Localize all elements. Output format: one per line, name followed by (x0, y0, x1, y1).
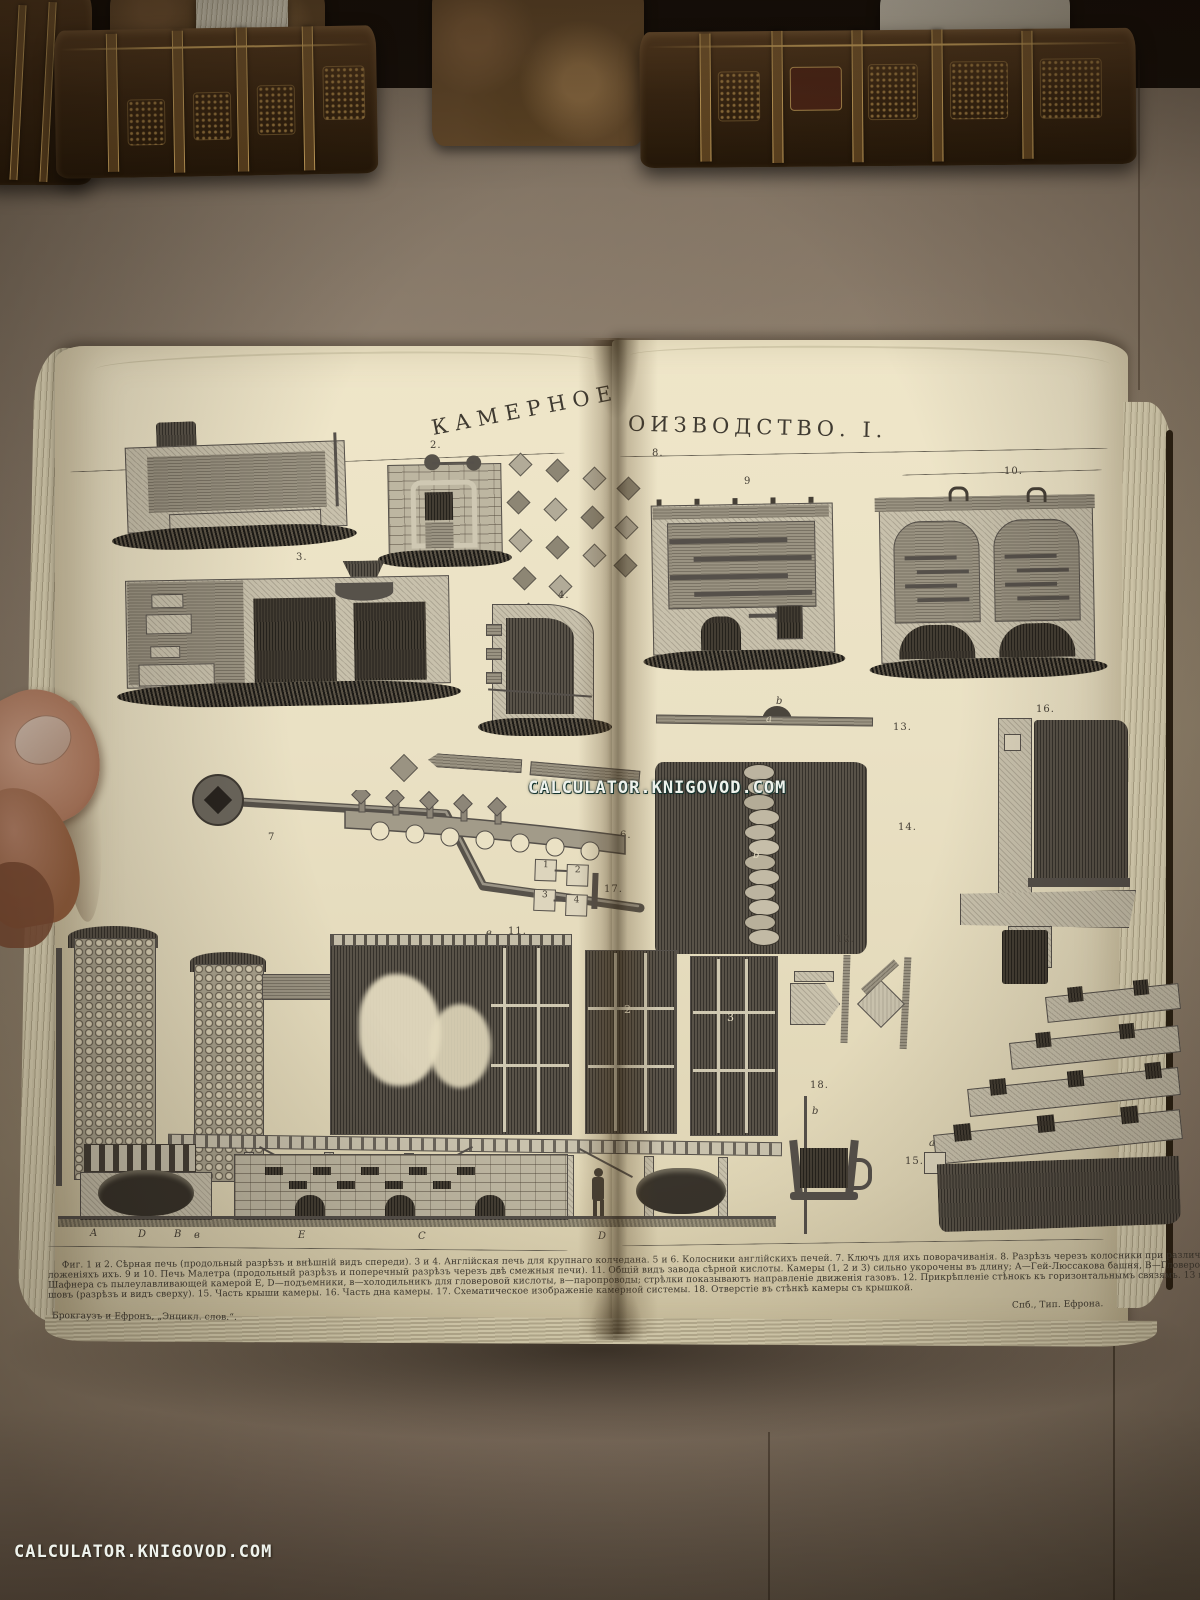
door-lower-panel (425, 522, 453, 548)
figure-12-wall-fixings (780, 955, 920, 1065)
spine-raised-band (771, 31, 783, 163)
furnace-interior (147, 451, 327, 513)
beam-boss (1120, 1106, 1139, 1125)
figure-10-maletra-transverse (874, 476, 1099, 682)
photo-scene: КАМЕРНОЕ ОИЗВОДСТВО. I. 2. 8. (0, 0, 1200, 1600)
timber-block (1002, 930, 1048, 984)
vent-opening (409, 1167, 427, 1175)
figure-3-english-furnace (121, 559, 454, 713)
spine-raised-band (172, 31, 185, 173)
baseline-letter-E: E (298, 1230, 305, 1241)
lead-curtain (937, 1156, 1181, 1232)
grate-stack (84, 1144, 196, 1172)
beam-boss (989, 1078, 1007, 1096)
fixing-plate-arrow (790, 983, 840, 1025)
chamber-rail-line (491, 1004, 569, 1007)
chamber-opening (353, 602, 426, 681)
gutter-top-notch (592, 340, 640, 420)
book-spine-right (639, 28, 1136, 168)
lid-trough-interior (800, 1148, 848, 1188)
beam-boss (1067, 986, 1083, 1002)
watermark-bottom-left: CALCULATOR.KNIGOVOD.COM (14, 1542, 272, 1562)
beam-boss (1119, 1023, 1135, 1039)
figure-14-letter-b: b (753, 850, 759, 861)
spine-gold-ornament (1040, 58, 1103, 119)
tower-pipe (56, 948, 62, 1186)
grate-bar (428, 753, 523, 774)
scheme-cell-number: 1 (543, 860, 549, 870)
vent-opening (289, 1181, 307, 1189)
spine-gold-ornament (868, 64, 918, 120)
baseline-letter-C: C (418, 1231, 426, 1242)
spine-gold-ornament (127, 99, 166, 146)
grate-diamond (543, 497, 567, 521)
beam-boss (1037, 1114, 1056, 1133)
furnace-door-arch (385, 1195, 415, 1217)
welded-disc (748, 929, 780, 946)
shelf-bar (1005, 582, 1057, 587)
sheet-foot (1028, 878, 1130, 887)
grate-diamond (508, 452, 532, 476)
spine-gold-ornament (718, 71, 760, 121)
fixing-clip (1004, 734, 1021, 751)
gutter-bottom-notch (588, 1280, 644, 1340)
figure-13-label: 13. (893, 722, 912, 733)
spine-raised-band (699, 34, 711, 162)
chamber-rail-line (693, 1011, 775, 1014)
baseline-letter-v: в (194, 1230, 200, 1241)
scheme-cell-1: 1 (534, 859, 557, 882)
figure-15-chamber-roof (920, 920, 1180, 1230)
chamber-mullion (745, 959, 748, 1133)
shelf-bay (993, 518, 1081, 621)
chamber-mullion (503, 948, 506, 1132)
beam-boss (1133, 979, 1149, 995)
vent-opening (457, 1167, 475, 1175)
spine-raised-band (931, 30, 943, 162)
bar-end-diamond (390, 754, 418, 782)
scheme-connector (554, 900, 566, 902)
acid-egg-tank (98, 1170, 194, 1216)
fixing-bar (840, 955, 850, 1043)
imprint-left: Брокгаузъ и Ефронъ, „Энцикл. слов.“. (52, 1311, 237, 1323)
chamber-opening (253, 597, 336, 682)
figure-18-label: 18. (810, 1080, 829, 1091)
paper-fold-top-right (1138, 60, 1140, 390)
shelf-bar (1017, 568, 1069, 573)
roof-beam-2 (967, 1067, 1181, 1117)
figure-12-label: 12. (836, 934, 855, 945)
chamber-rail-line (491, 1064, 569, 1067)
baseline-letter-A: A (90, 1228, 97, 1239)
baseline-letter-D: D (138, 1229, 146, 1240)
scheme-cell-3: 3 (533, 889, 556, 912)
beam-boss (1067, 1070, 1085, 1088)
chamber-mullion (717, 959, 720, 1133)
ground-hatch-strip (58, 1219, 776, 1227)
furnace-bank (234, 1154, 568, 1220)
roof-beam-4 (1045, 983, 1181, 1023)
shelf-bar (1005, 554, 1057, 559)
chamber-mullion (537, 948, 540, 1132)
grate-diamond (512, 566, 536, 590)
figure-10-label: 10. (1004, 466, 1023, 477)
charging-door (151, 594, 183, 609)
spine-raised-band (302, 26, 316, 170)
spine-gilt-line (648, 42, 1128, 48)
scheme-cell-number: 3 (542, 890, 548, 900)
lead-wall-sheet (1034, 720, 1128, 884)
beam-boss (1144, 1062, 1162, 1080)
gutter-shadow (578, 338, 658, 1334)
shelf-bar (905, 584, 957, 589)
beam-boss (1035, 1032, 1051, 1048)
figure-2-furnace-front (382, 449, 509, 569)
vapour-cloud (429, 1004, 491, 1088)
fixing-strip (794, 971, 834, 982)
watermark-center: CALCULATOR.KNIGOVOD.COM (528, 778, 786, 798)
vent-opening (337, 1181, 355, 1189)
chamber-rail-line (693, 1069, 775, 1072)
grate-diamond (545, 458, 569, 482)
grate-diamond (508, 528, 532, 552)
book-spine-left (54, 25, 379, 179)
spine-raised-band (236, 27, 250, 171)
damaged-book-cover-right (432, 0, 644, 146)
shelf-bar (1017, 596, 1069, 601)
spine-gold-ornament (950, 61, 1009, 120)
side-damper (486, 672, 502, 684)
lead-chamber-1 (330, 945, 572, 1135)
imprint-right: Спб., Тип. Ефрона. (1012, 1299, 1104, 1311)
lead-chamber-3: 3 (690, 956, 778, 1136)
figure-1-sulfur-furnace-section (108, 416, 357, 552)
glover-tower (194, 964, 264, 1182)
vent-opening (265, 1167, 283, 1175)
lid-handle (852, 1158, 872, 1190)
spine-gold-ornament (257, 85, 296, 136)
grate-diamond (506, 490, 530, 514)
vent-opening (313, 1167, 331, 1175)
paper-seam-bottom (768, 1432, 770, 1600)
spine-raised-band (1021, 31, 1033, 159)
vent-opening (385, 1181, 403, 1189)
spine-gold-ornament (193, 92, 232, 141)
lid-trough-bottom (790, 1192, 858, 1200)
figure-13-letter-a: a (766, 714, 772, 725)
spine-raised-band (106, 34, 119, 172)
vapour-cloud (359, 974, 441, 1086)
side-damper (486, 624, 502, 636)
charging-door (146, 614, 192, 635)
figure-9-maletra-furnace (646, 486, 841, 673)
fire-door-arch (701, 616, 742, 651)
figure-18-opening-lid (784, 1096, 874, 1234)
figure-14-label: 14. (898, 822, 917, 833)
grate-box (776, 605, 803, 639)
charging-door (150, 646, 180, 659)
beam-boss (953, 1123, 972, 1142)
lead-strip (656, 714, 873, 726)
section-interior (506, 618, 574, 714)
scheme-connector (555, 870, 567, 872)
shelf-bar (917, 597, 969, 602)
shelf-bar (905, 556, 957, 561)
baseline-letter-B: B (174, 1229, 181, 1240)
spine-raised-band (851, 30, 863, 162)
lid-loop (1026, 487, 1046, 502)
vent-opening (433, 1181, 451, 1189)
side-damper (486, 648, 502, 660)
chamber-3-number: 3 (727, 1011, 734, 1024)
door-opening (425, 492, 453, 520)
shelf-bar (917, 569, 969, 574)
figure-13-seam-section (656, 700, 871, 730)
lid-loop (948, 486, 968, 501)
furnace-door-arch (475, 1195, 505, 1217)
spine-gold-ornament (322, 65, 365, 120)
grate-diamond (545, 535, 569, 559)
shelf-bay (893, 520, 981, 623)
spine-title-label (790, 66, 842, 110)
furnace-door-arch (295, 1195, 325, 1217)
vent-opening (361, 1167, 379, 1175)
figure-9-label: 9 (744, 476, 751, 487)
